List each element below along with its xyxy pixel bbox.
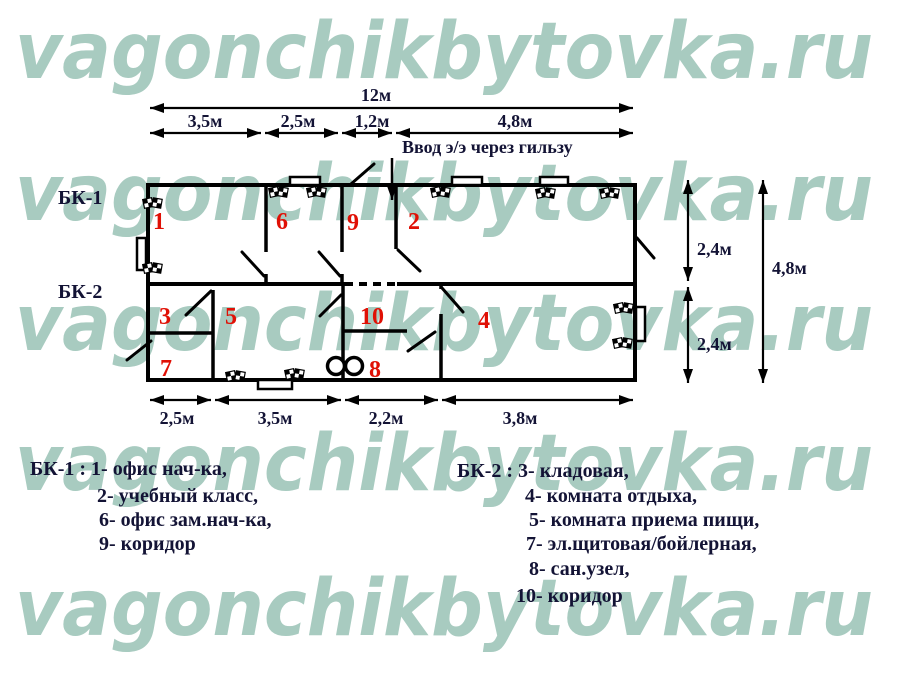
room-number-9: 9 <box>347 210 359 236</box>
room-number-5: 5 <box>225 304 237 330</box>
legend-bk2-line-5: 8- сан.узел, <box>529 558 629 580</box>
room-number-7: 7 <box>160 356 172 382</box>
door-swing-room2 <box>398 250 420 271</box>
dim-bottom-2: 3,5м <box>258 408 293 428</box>
door-frame-right <box>636 307 645 341</box>
floorplan-page: vagonchikbytovka.ru vagonchikbytovka.ru … <box>0 0 900 675</box>
entry-note-label: Ввод э/э через гильзу <box>402 137 573 157</box>
dim-total-width: 12м <box>361 85 391 105</box>
window-hatch-icon <box>143 263 163 274</box>
dim-top-1: 3,5м <box>188 111 223 131</box>
room-number-10: 10 <box>360 304 384 330</box>
vent-frame-top-1 <box>290 177 320 185</box>
legend-bk2-line-3: 5- комната приема пищи, <box>529 509 759 531</box>
dim-bottom-4: 3,8м <box>503 408 538 428</box>
door-swing-room1 <box>242 252 264 276</box>
window-hatch-icon <box>226 371 246 382</box>
dim-total-height: 4,8м <box>772 258 807 278</box>
vent-frame-top-3 <box>540 177 568 185</box>
legend-bk1-line-2: 2- учебный класс, <box>97 485 258 507</box>
legend-bk2-line-6: 10- коридор <box>516 585 623 607</box>
dim-right-lower: 2,4м <box>697 334 732 354</box>
vent-frame-top-2 <box>452 177 482 185</box>
legend-bk1-line-4: 9- коридор <box>99 533 196 555</box>
watermark-rows: vagonchikbytovka.ru vagonchikbytovka.ru … <box>15 7 873 654</box>
watermark-text: vagonchikbytovka.ru <box>15 7 873 97</box>
room-number-3: 3 <box>159 304 171 330</box>
window-hatch-icon <box>285 369 305 380</box>
room-number-1: 1 <box>153 209 165 235</box>
dim-top-3: 1,2м <box>355 111 390 131</box>
block-label-bk1: БК-1 <box>58 187 102 209</box>
legend-bk1-line-3: 6- офис зам.нач-ка, <box>99 509 271 531</box>
floorplan-drawing: vagonchikbytovka.ru vagonchikbytovka.ru … <box>0 0 900 675</box>
room-number-8: 8 <box>369 357 381 383</box>
room-number-2: 2 <box>408 209 420 235</box>
toilet-fixture-icon <box>328 358 345 375</box>
dim-bottom-1: 2,5м <box>160 408 195 428</box>
block-label-bk2: БК-2 <box>58 281 102 303</box>
room-number-4: 4 <box>478 308 490 334</box>
sink-fixture-icon <box>346 358 363 375</box>
dim-right-upper: 2,4м <box>697 239 732 259</box>
dim-top-4: 4,8м <box>498 111 533 131</box>
door-frame-bottom <box>258 380 292 389</box>
legend-bk2-line-2: 4- комната отдыха, <box>525 485 697 507</box>
dim-bottom-3: 2,2м <box>369 408 404 428</box>
room-number-6: 6 <box>276 209 288 235</box>
door-swing-room6 <box>319 252 340 276</box>
legend-bk1-line-1: БК-1 : 1- офис нач-ка, <box>30 458 227 480</box>
dim-top-2: 2,5м <box>281 111 316 131</box>
legend-bk2-line-4: 7- эл.щитовая/бойлерная, <box>526 533 757 555</box>
legend-bk2-line-1: БК-2 : 3- кладовая, <box>457 460 629 482</box>
watermark-text: vagonchikbytovka.ru <box>15 564 873 654</box>
door-swing-room2-exit <box>637 238 654 258</box>
